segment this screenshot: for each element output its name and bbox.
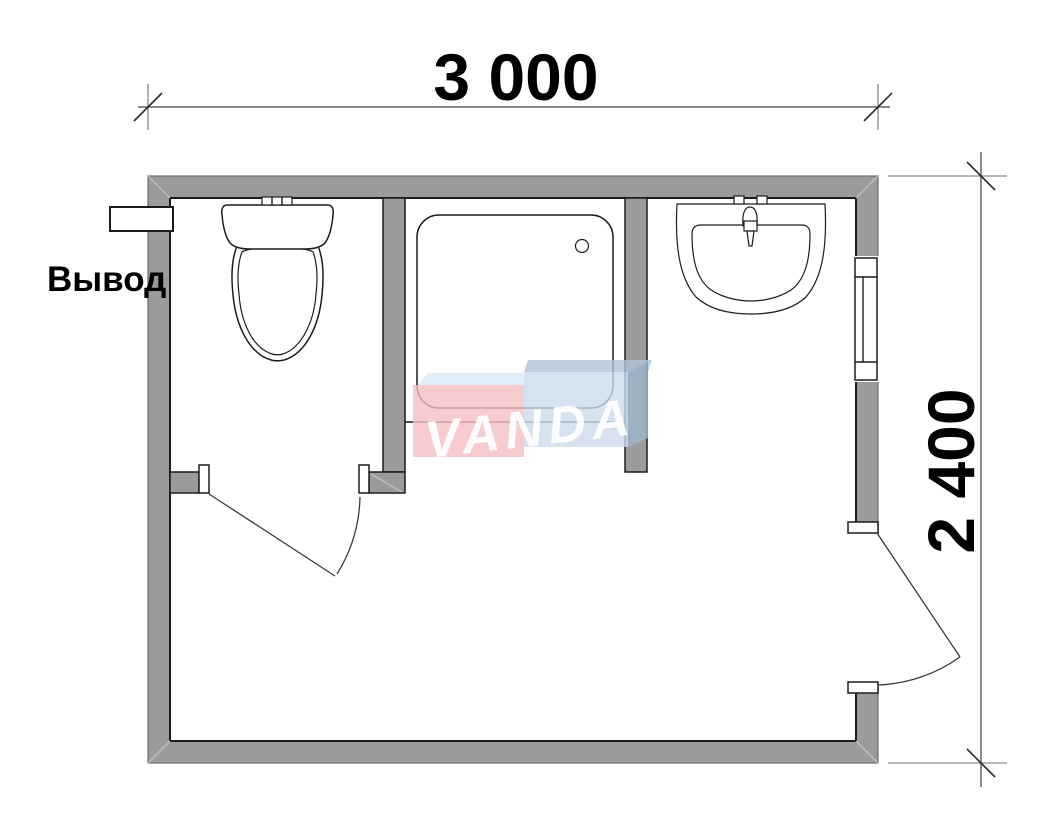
entry-door-opening — [852, 533, 881, 682]
height-dimension: 2 400 — [888, 152, 1007, 787]
height-dimension-value: 2 400 — [914, 388, 988, 553]
floor-plan-page: 3 000 2 400 Вывод VANDA — [0, 0, 1054, 818]
supply-mark-icon — [757, 196, 767, 204]
watermark-bevel-left — [418, 373, 530, 385]
floor-plan-drawing: 3 000 2 400 Вывод VANDA — [0, 0, 1054, 818]
toilet-supply-marks — [262, 197, 292, 205]
toilet-door-jamb-left — [199, 465, 209, 493]
toilet-door-jamb-right — [359, 465, 369, 493]
entry-door-swing-arc — [878, 657, 960, 685]
wall-toilet-shower — [383, 198, 405, 472]
window — [853, 256, 880, 382]
faucet-base — [744, 221, 757, 231]
entry-door-jamb-top — [848, 522, 878, 533]
supply-mark-icon — [734, 196, 744, 204]
toilet-door-leaf — [209, 494, 335, 576]
toilet-door-stub-left — [170, 472, 199, 493]
width-dimension: 3 000 — [134, 40, 892, 130]
toilet-door — [199, 465, 369, 576]
shower-drain-icon — [576, 240, 589, 253]
outlet-label: Вывод — [47, 260, 166, 299]
entry-door-jamb-bottom — [848, 682, 878, 693]
toilet-door-swing-arc — [337, 497, 360, 574]
toilet — [222, 197, 334, 361]
sink — [676, 196, 825, 314]
toilet-tank — [222, 205, 334, 249]
outlet-stub — [110, 207, 173, 231]
width-dimension-value: 3 000 — [433, 40, 598, 114]
supply-mark-icon — [262, 197, 292, 205]
toilet-door-stub-right — [369, 472, 405, 493]
